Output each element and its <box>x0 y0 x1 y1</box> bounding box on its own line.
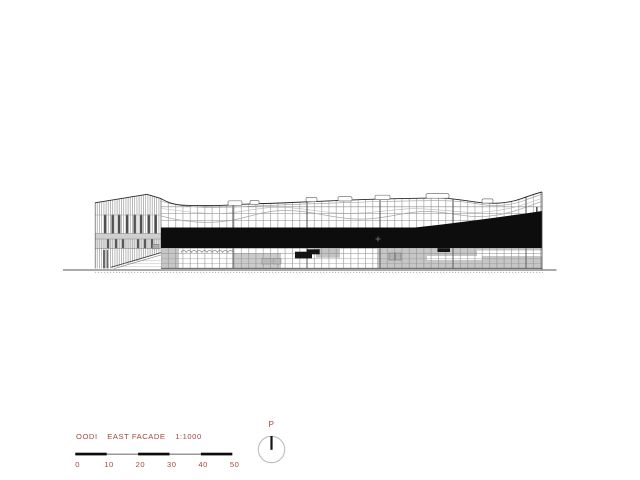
scale-tick-label: 30 <box>167 460 177 469</box>
view-name: EAST FACADE <box>107 432 165 441</box>
stair-rail-detail <box>153 244 160 249</box>
ground-line <box>63 270 557 272</box>
project-name: OODI <box>76 432 98 441</box>
scale-tick-label: 0 <box>75 460 80 469</box>
graphic-scale-bar <box>75 453 232 456</box>
scale-tick-label: 40 <box>198 460 208 469</box>
facade-elevation-drawing <box>0 0 640 480</box>
drawing-sheet: OODI EAST FACADE 1:1000 0 10 20 30 40 50… <box>0 0 640 480</box>
slat-band-divider <box>95 234 161 240</box>
scale-tick-label: 20 <box>136 460 146 469</box>
drawing-title: OODI EAST FACADE 1:1000 <box>76 432 209 441</box>
drawing-scale: 1:1000 <box>175 432 202 441</box>
north-indicator <box>258 436 284 463</box>
scale-tick-label: 50 <box>230 460 240 469</box>
scale-tick-label: 10 <box>104 460 114 469</box>
north-label: P <box>268 420 274 429</box>
